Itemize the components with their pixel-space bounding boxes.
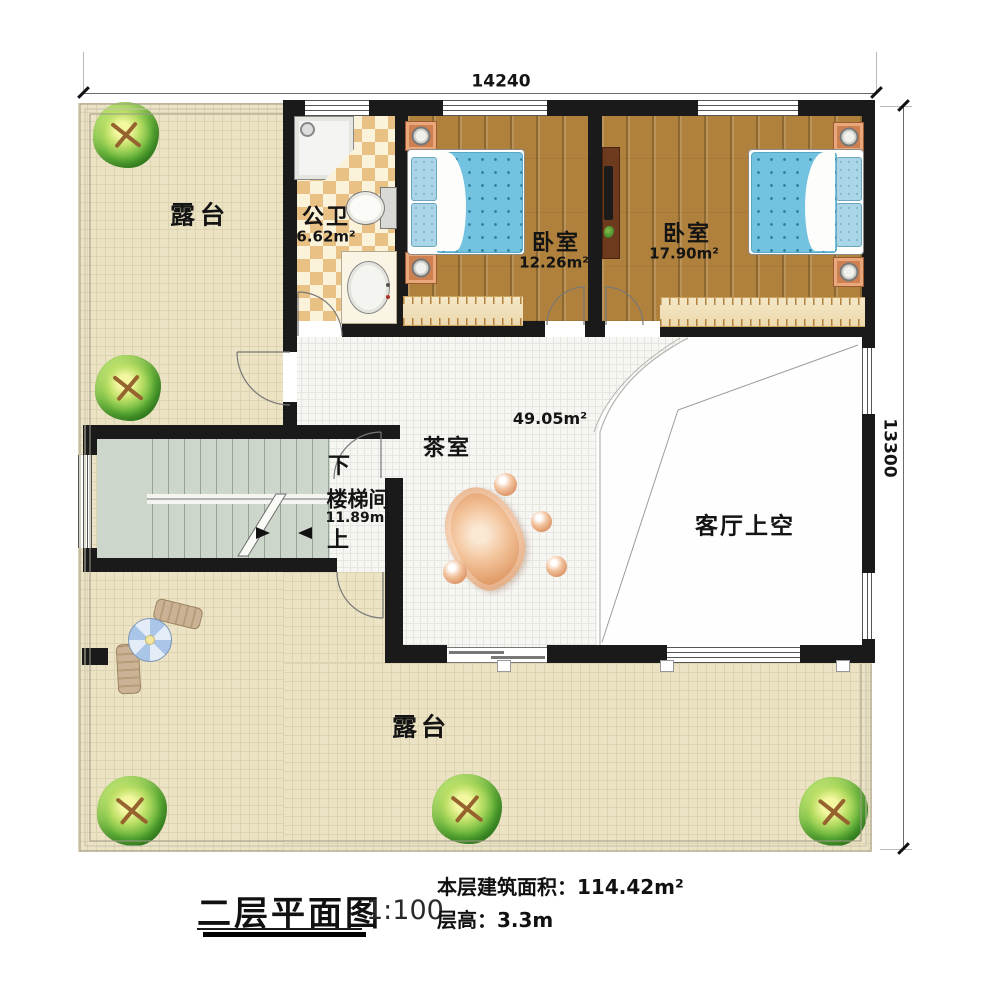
monitor-icon (604, 166, 613, 220)
tree (799, 777, 868, 846)
wall-bedrooms-divider (588, 116, 602, 321)
nightstand (833, 257, 864, 287)
label-stair-down: 下 (328, 456, 350, 478)
window-right-lower (862, 573, 875, 639)
parasol-center (145, 635, 155, 645)
floor-area-label: 本层建筑面积：114.42m² (437, 871, 684, 900)
terrace-notch-floor (283, 572, 385, 663)
bed-large (748, 149, 864, 255)
dimension-top-value: 14240 (471, 74, 530, 91)
extension-line (880, 106, 912, 107)
tree (93, 102, 159, 168)
nightstand (833, 122, 864, 152)
dimension-right-value: 13300 (881, 418, 898, 477)
tea-stool (494, 473, 517, 496)
label-bedroom-small-area: 12.26m² (519, 256, 589, 271)
sink-tap-dot (386, 295, 390, 299)
stair-handrail (147, 494, 330, 504)
tea-stool (443, 560, 467, 584)
column-marker-2 (660, 660, 674, 672)
window-right-upper (862, 348, 875, 414)
window-bedroom-small-top (443, 100, 547, 116)
shower-head-icon (300, 122, 315, 137)
nightstand (405, 252, 437, 284)
window-tea-bottom (667, 647, 800, 663)
label-hall-area: 49.05m² (513, 411, 587, 427)
wall-stair-bottom (83, 558, 337, 572)
extension-line (876, 52, 877, 92)
label-tea-room: 茶室 (423, 438, 471, 460)
label-terrace-top: 露台 (170, 203, 230, 228)
wall-right-2 (862, 414, 875, 573)
tree (432, 774, 502, 844)
label-bedroom-large: 卧室 (663, 224, 711, 246)
extension-line (880, 849, 912, 850)
bed-small (407, 149, 525, 255)
label-bathroom: 公卫 (302, 207, 350, 229)
rug-bedroom-large (660, 297, 865, 327)
window-stairwell-left (78, 455, 92, 548)
pillow (836, 203, 862, 247)
living-room-void-area (597, 337, 862, 648)
dimension-line-top (83, 93, 877, 94)
tree (97, 776, 167, 846)
label-stairwell-area: 11.89m² (325, 511, 390, 525)
rug-bedroom-small (403, 296, 523, 326)
window-bathroom-top (305, 100, 369, 116)
terrace-bottom-floor (283, 663, 872, 852)
tree (95, 355, 161, 421)
label-bedroom-small: 卧室 (532, 233, 580, 255)
sink-basin (347, 261, 390, 314)
wall-bottom-a (385, 645, 447, 663)
pillow (836, 157, 862, 201)
dimension-line-right (903, 107, 904, 849)
floor-plan-page: 14240 13300 露台 公卫 6.62m² 卧室 12.26m² 卧室 1… (0, 0, 1000, 990)
sliding-door-leaf-2 (491, 656, 545, 659)
extension-line (83, 52, 84, 92)
label-living-void: 客厅上空 (695, 516, 795, 539)
title-underline-thick (203, 932, 366, 937)
column-marker-3 (836, 660, 850, 672)
toilet-bowl (346, 191, 385, 225)
label-bathroom-area: 6.62m² (296, 230, 355, 245)
label-stairwell: 楼梯间 (327, 490, 390, 511)
title-underline-thin (197, 928, 362, 930)
scale-label: 1:100 (366, 895, 444, 926)
sliding-door-leaf-1 (449, 651, 504, 654)
pillow (411, 203, 437, 247)
tea-stool (531, 511, 552, 532)
wall-bottom-b (547, 645, 667, 663)
label-stair-up: 上 (327, 530, 349, 552)
label-terrace-bottom: 露台 (392, 715, 450, 740)
column-marker-1 (497, 660, 511, 672)
wall-stair-top (83, 425, 400, 439)
nightstand (405, 121, 437, 151)
window-bedroom-large-top (698, 100, 798, 116)
pillow (411, 157, 437, 201)
sink-faucet (386, 283, 390, 287)
terrace-column (82, 648, 108, 665)
label-bedroom-large-area: 17.90m² (649, 247, 719, 262)
tea-stool (546, 556, 567, 577)
wall-row-b (585, 321, 605, 337)
wall-stair-left-a (83, 425, 97, 455)
floor-height-label: 层高：3.3m (437, 904, 553, 933)
